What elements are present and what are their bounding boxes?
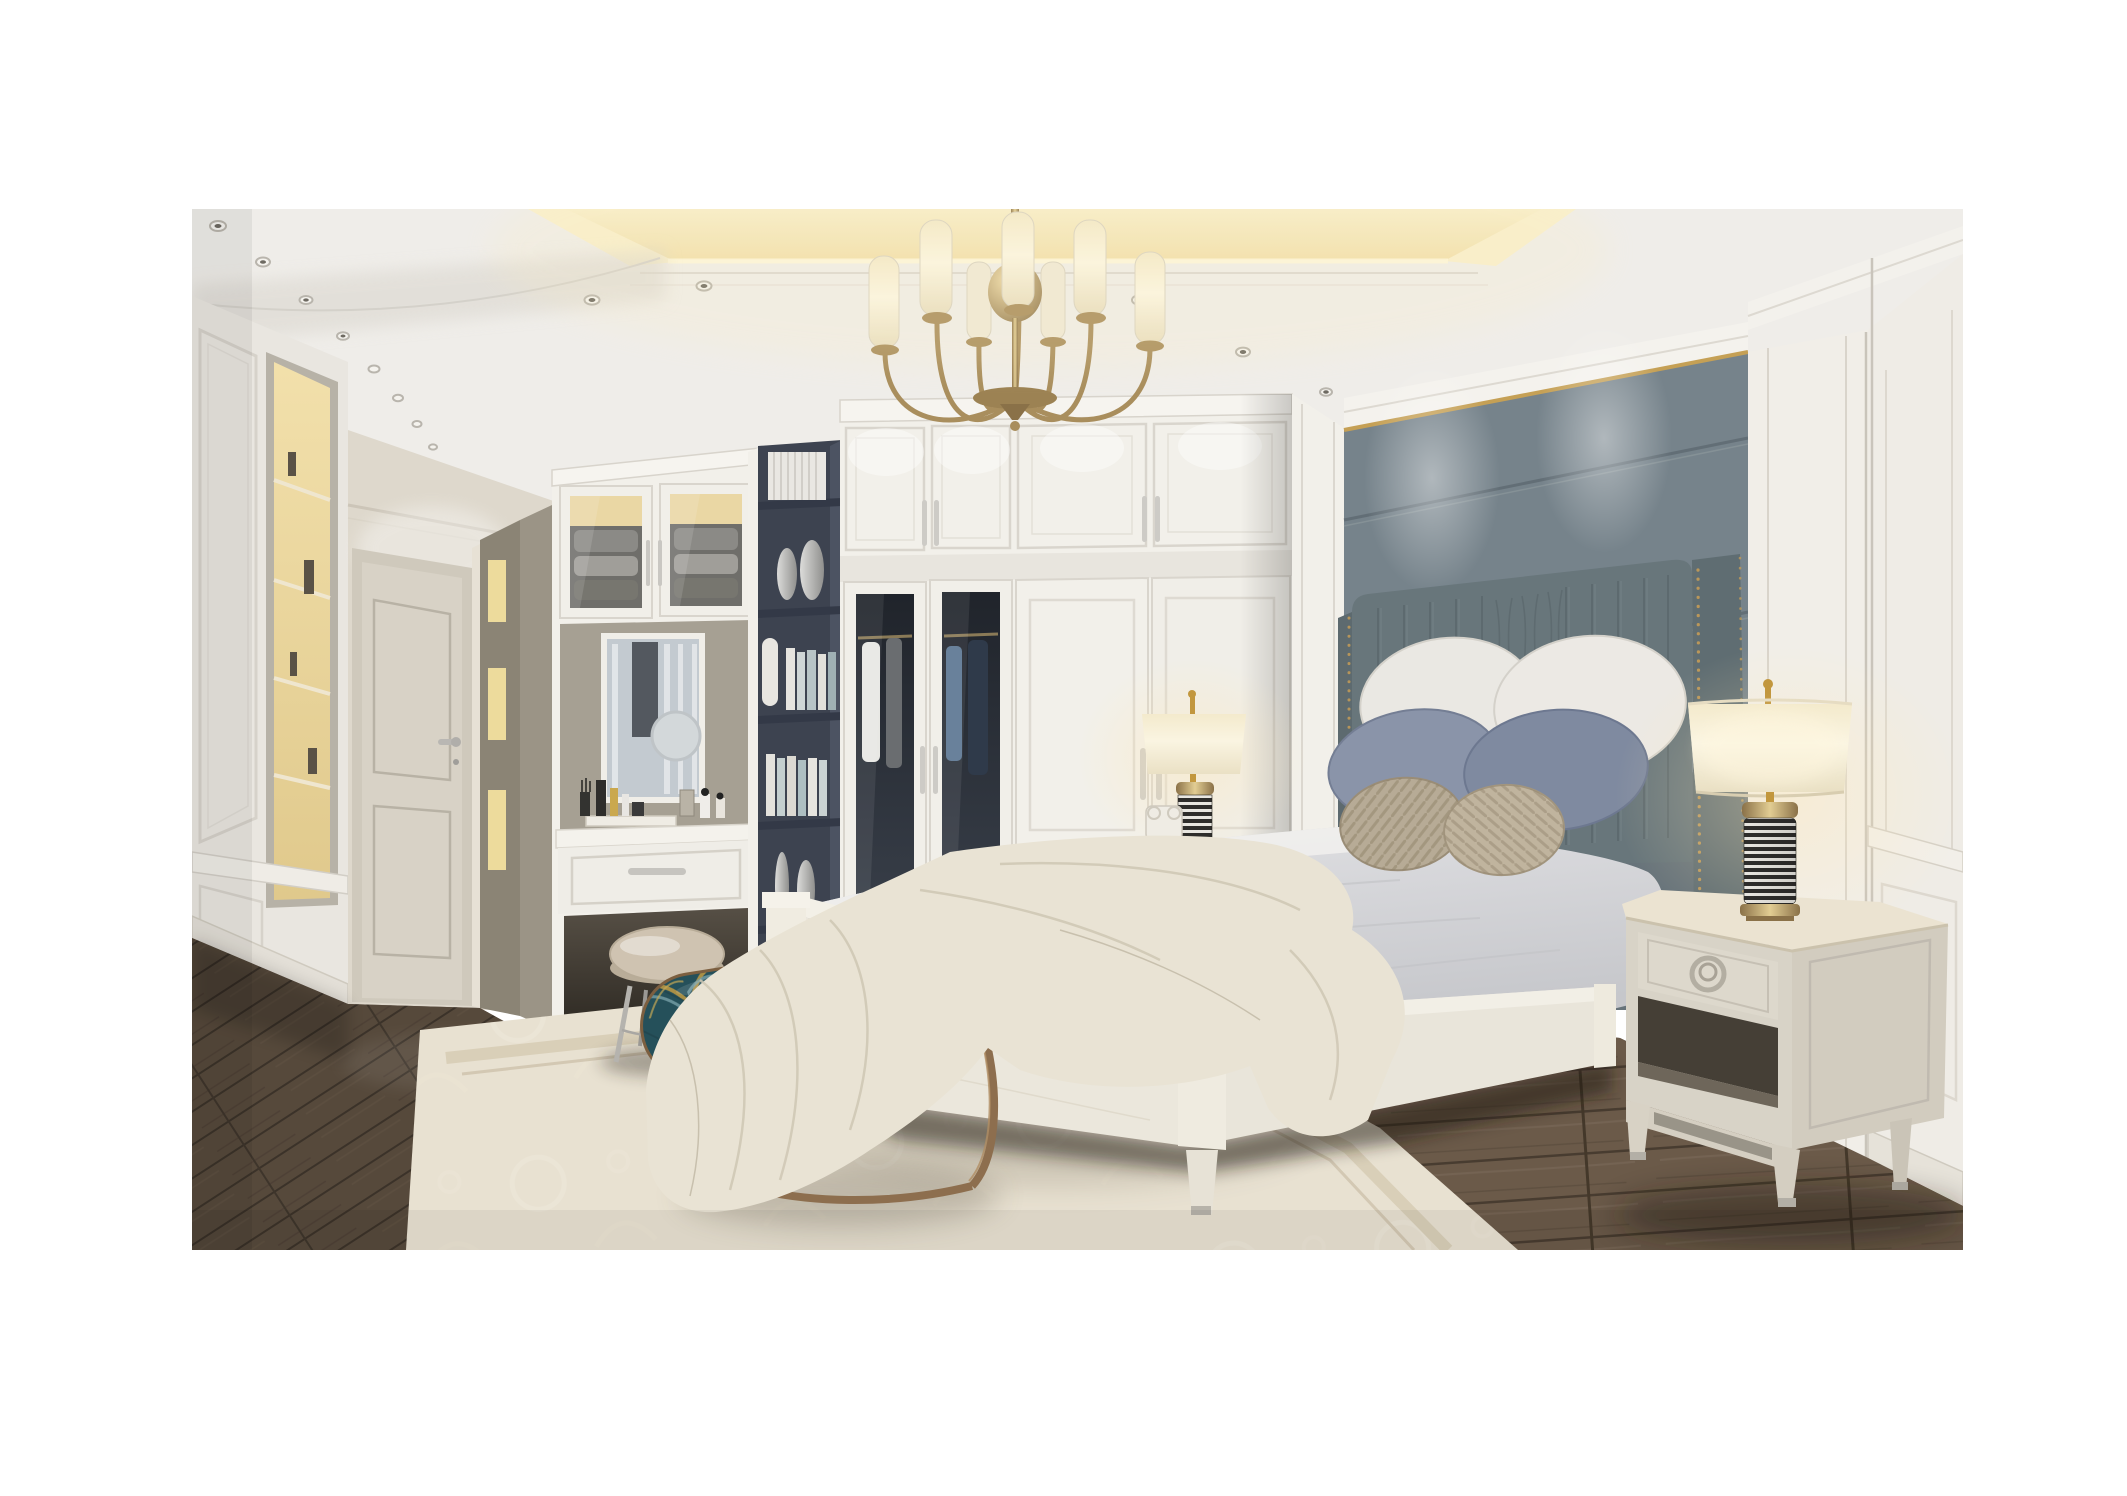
hanging-suit-gray bbox=[886, 638, 902, 768]
wall-spot-wash bbox=[1536, 323, 1672, 553]
cabinet-handle bbox=[658, 540, 662, 586]
hanging-jacket-navy bbox=[968, 640, 988, 775]
niche-lit-interior bbox=[274, 362, 330, 900]
hallway bbox=[348, 430, 565, 1030]
glass-door-handle bbox=[920, 746, 925, 794]
chandelier-finial bbox=[1010, 421, 1020, 431]
books-row1 bbox=[786, 648, 836, 710]
mirror-reflection-dark bbox=[632, 642, 658, 737]
screenshot-canvas bbox=[0, 0, 2127, 1496]
magazines bbox=[768, 452, 826, 500]
magnifier-mirror bbox=[652, 712, 700, 760]
groove-lights bbox=[488, 560, 506, 870]
bedroom-scene bbox=[192, 209, 1963, 1250]
door-keyhole bbox=[453, 759, 459, 765]
drawer-handle bbox=[628, 868, 686, 875]
door-handle-rose bbox=[451, 737, 461, 747]
bedroom-photo bbox=[192, 209, 1963, 1250]
door-slab bbox=[362, 562, 462, 1000]
cabinet-handle bbox=[646, 540, 650, 586]
glass-door-handle bbox=[933, 746, 938, 794]
carved-ornament bbox=[1146, 806, 1182, 840]
wall-spot-wash bbox=[1364, 363, 1500, 593]
nightstand-side bbox=[1792, 924, 1948, 1150]
